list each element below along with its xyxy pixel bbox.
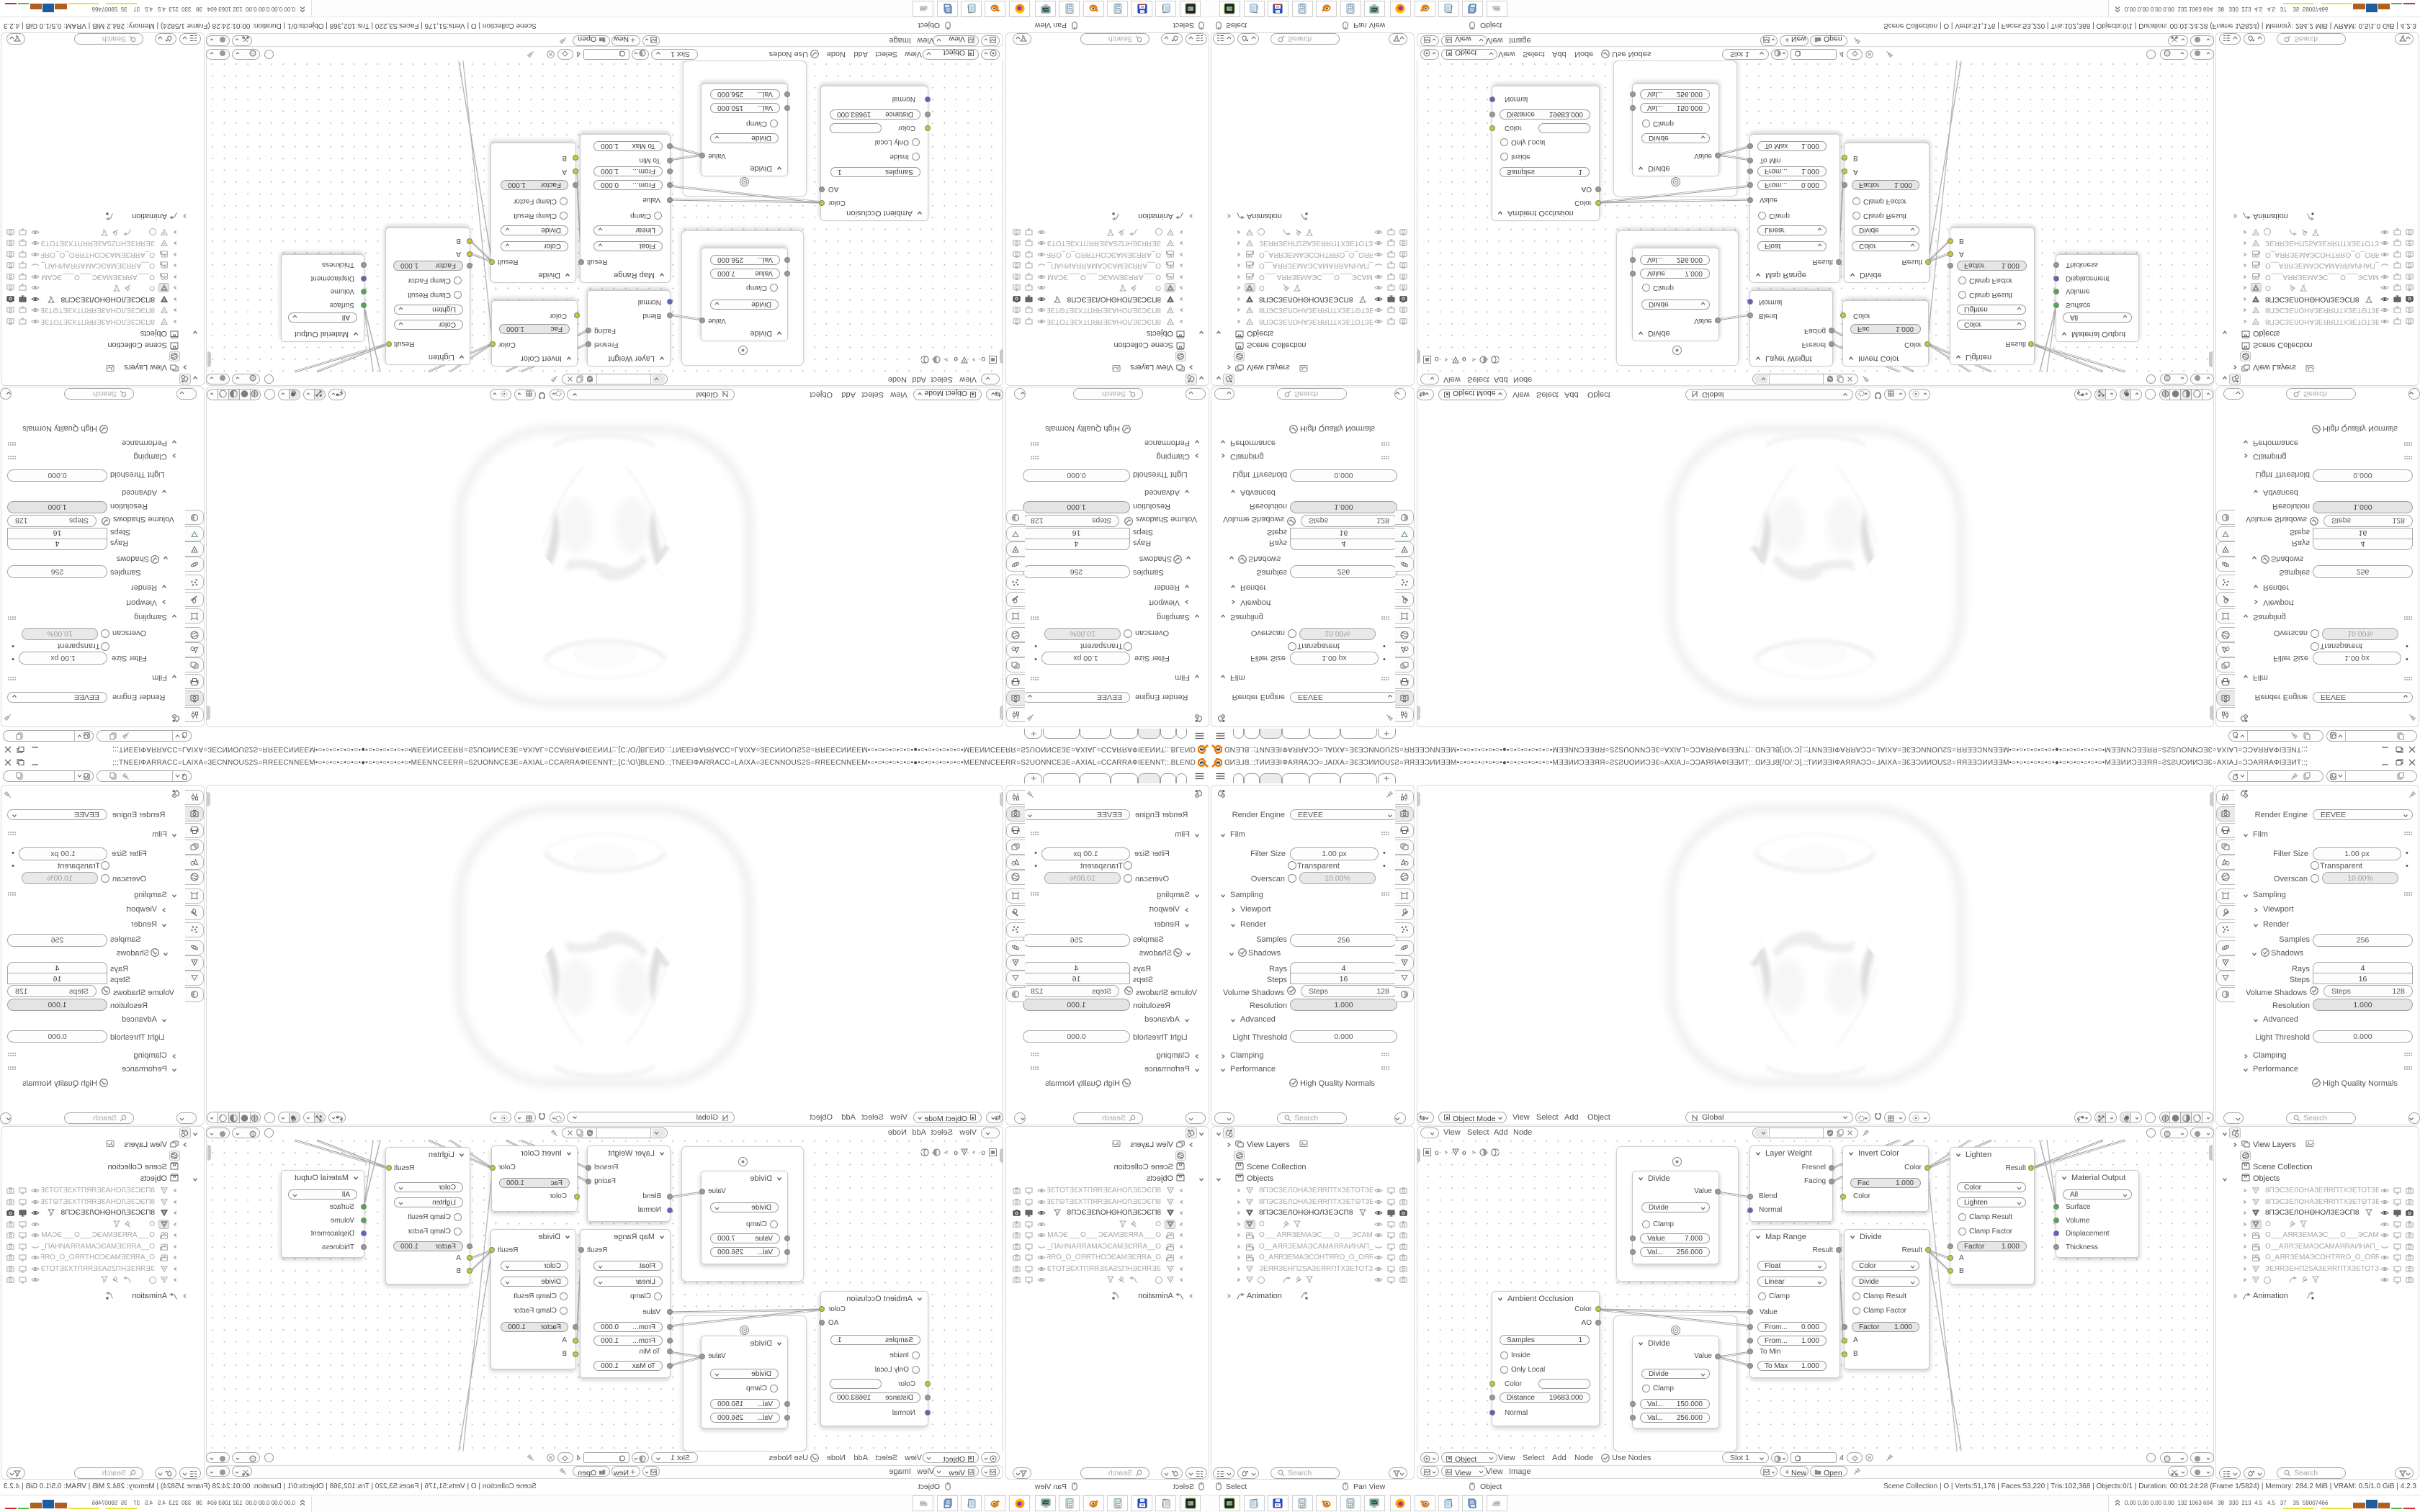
svg-text:64: 64: [1276, 5, 1280, 9]
svg-text:64: 64: [1140, 5, 1144, 9]
svg-text:64: 64: [1276, 1503, 1280, 1507]
svg-text:64: 64: [1140, 1503, 1144, 1507]
